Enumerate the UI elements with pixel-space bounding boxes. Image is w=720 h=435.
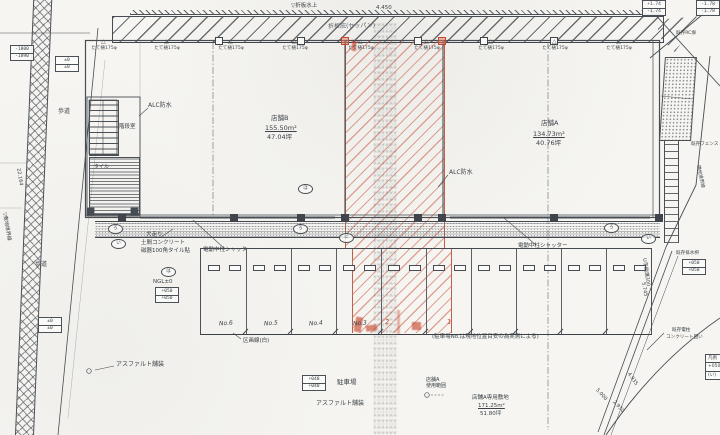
room-stair: 階段室 xyxy=(119,124,136,130)
note-tile: タイル xyxy=(94,165,109,171)
note-asphalt-left: アスファルト舗装 xyxy=(116,362,164,369)
dim-top: 4.450 xyxy=(376,5,392,11)
wheel-stop-mark xyxy=(298,265,310,271)
stall-number: No.4 xyxy=(309,320,323,328)
column-mark xyxy=(341,214,349,222)
room-a-tsubo: 40.76坪 xyxy=(536,140,561,147)
column-mark-red xyxy=(341,37,349,45)
note-lane-line: 区画線(白) xyxy=(243,338,269,344)
wheel-stop-mark xyxy=(388,265,400,271)
stall-divider xyxy=(561,249,562,334)
room-a-name: 店舗A xyxy=(541,120,558,127)
level-box-walk-value: +050 xyxy=(156,295,178,303)
legend-row: +050 xyxy=(706,362,720,370)
legend-row: 凡例 xyxy=(706,355,720,362)
level-box-ne-2-value: -1.78 xyxy=(697,8,719,16)
downspout-label: たて樋175φ xyxy=(149,45,185,51)
wheel-stop-mark xyxy=(499,265,511,271)
note-asphalt-center: アスファルト舗装 xyxy=(316,401,364,408)
note-rc-wall: 既存RC塀 xyxy=(676,31,696,36)
level-box-drain-value: +050 xyxy=(683,267,705,275)
wheel-stop-mark xyxy=(253,265,265,271)
wheel-stop-mark xyxy=(409,265,421,271)
note-inubashiri-3: 磁器100角タイル貼 xyxy=(141,248,190,254)
downspout-label: たて樋175φ xyxy=(601,45,637,51)
legend: 凡例+050(い) xyxy=(705,354,720,380)
wheel-stop-mark xyxy=(544,265,556,271)
downspout-label: たて樋175φ xyxy=(86,45,122,51)
note-inubashiri-1: 犬走り xyxy=(146,232,163,238)
wheel-stop-mark xyxy=(454,265,466,271)
stall-divider xyxy=(336,249,337,334)
note-inubashiri-2: 土間コンクリート xyxy=(141,240,185,246)
room-a-area: 134.73m² xyxy=(533,131,565,138)
downspout-label: たて樋175φ xyxy=(409,45,445,51)
stall-number-red: 1 xyxy=(447,318,452,326)
column-mark xyxy=(438,214,446,222)
stall-divider xyxy=(606,249,607,334)
column-mark xyxy=(297,214,305,222)
wheel-stop-mark xyxy=(208,265,220,271)
note-shutter-left: 電動中柱シャッター xyxy=(203,247,253,253)
column-mark xyxy=(655,214,663,222)
level-box-road-top: -1800-1890 xyxy=(10,45,34,61)
column-mark xyxy=(215,37,223,45)
level-box-ne-2: -1.78-1.78 xyxy=(696,0,720,16)
ref-bubble: ろ xyxy=(293,224,308,234)
downspout-label: たて樋175φ xyxy=(473,45,509,51)
stall-divider xyxy=(516,249,517,334)
column-mark xyxy=(480,37,488,45)
room-b-name: 店舗B xyxy=(271,115,288,122)
wheel-stop-mark xyxy=(568,265,580,271)
downspout-label: たて樋175φ xyxy=(343,45,379,51)
note-drain: 既存排水桝 xyxy=(676,251,699,256)
note-sidewalk-1: 歩道 xyxy=(58,109,70,116)
column-mark xyxy=(414,37,422,45)
ref-bubble: は xyxy=(161,267,176,277)
level-box-road-top-value: -1890 xyxy=(11,53,33,61)
ref-bubble: ほ xyxy=(298,184,313,194)
wheel-stop-mark xyxy=(343,265,355,271)
room-b-area: 155.50m² xyxy=(265,125,297,132)
stall-number-red: 2 xyxy=(385,318,390,326)
stall-divider xyxy=(291,249,292,334)
column-mark xyxy=(297,37,305,45)
ref-bubble: ろ xyxy=(108,224,123,234)
column-mark-red xyxy=(438,37,446,45)
wheel-stop-mark xyxy=(364,265,376,271)
site-plan-drawing: No.6No.5No.4No.321 △たて樋175φ△たて樋175φ△たて樋1… xyxy=(0,0,720,435)
wheel-stop-mark xyxy=(478,265,490,271)
downspout-label: たて樋175φ xyxy=(213,45,249,51)
ref-bubble: に xyxy=(339,233,354,243)
ref-bubble: ろ xyxy=(604,223,619,233)
level-box-left-low-value: ±0 xyxy=(39,325,61,333)
level-box-lot-value: +040 xyxy=(303,383,325,391)
note-fence: 既存フェンス xyxy=(691,142,718,147)
stall-divider xyxy=(426,249,427,334)
wheel-stop-mark xyxy=(229,265,241,271)
level-box-ne-1: +1.74-1.74 xyxy=(642,0,666,16)
stall-number: No.6 xyxy=(219,320,233,328)
note-a-range-2: 使用範囲 xyxy=(426,384,446,390)
wheel-stop-mark xyxy=(274,265,286,271)
note-a-site-tsubo: 51.80坪 xyxy=(480,411,501,417)
column-mark xyxy=(118,214,126,222)
note-alc-left: ALC防水 xyxy=(148,103,172,110)
dim-road-1: 5.745 xyxy=(639,282,647,297)
level-box-ne-1-value: -1.74 xyxy=(643,8,665,16)
column-mark xyxy=(550,214,558,222)
level-box-left-low: ±0±0 xyxy=(38,317,62,333)
note-shutter-right: 電動中柱シャッター xyxy=(518,243,568,249)
room-b-tsubo: 47.04坪 xyxy=(267,134,292,141)
note-pole-2: コンクリート囲い xyxy=(666,335,703,340)
stall-number: No.3 xyxy=(353,320,367,328)
note-parking-lot: 駐車場 xyxy=(337,379,357,386)
note-alc-right: ALC防水 xyxy=(449,170,473,177)
note-parking-no: (駐車場No.は現地位置目安の為実測による) xyxy=(432,334,539,340)
note-pole-1: 既存電柱 xyxy=(672,328,690,333)
stall-divider xyxy=(381,249,382,334)
stall-divider xyxy=(471,249,472,334)
wheel-stop-mark xyxy=(589,265,601,271)
wheel-stop-mark xyxy=(433,265,445,271)
stall-divider xyxy=(246,249,247,334)
line-work xyxy=(0,0,720,435)
ref-bubble: い xyxy=(111,239,126,249)
wheel-stop-mark xyxy=(319,265,331,271)
level-box-walk: +050+050 xyxy=(155,287,179,303)
stall-number: No.5 xyxy=(264,320,278,328)
note-canopy: 折板庇(セッパン) xyxy=(328,23,375,31)
legend-row: (い) xyxy=(706,371,720,379)
note-a-site-area: 171.25m² xyxy=(478,403,505,409)
note-a-site: 店舗A専用敷地 xyxy=(472,395,509,401)
parking-stall-block: No.6No.5No.4No.321 xyxy=(200,248,652,335)
wheel-stop-mark xyxy=(613,265,625,271)
level-box-lot: +040+040 xyxy=(302,375,326,391)
ref-bubble: い xyxy=(641,234,656,244)
note-ngl: NGL±0 xyxy=(153,279,173,285)
level-box-drain: +050+050 xyxy=(682,259,706,275)
level-box-entry-value: ±0 xyxy=(56,64,78,72)
level-box-entry: ±0±0 xyxy=(55,56,79,72)
note-eave-top: ▽折板水上 xyxy=(291,3,317,9)
wheel-stop-mark xyxy=(523,265,535,271)
column-mark xyxy=(230,214,238,222)
downspout-label: たて樋175φ xyxy=(537,45,573,51)
column-mark xyxy=(414,214,422,222)
note-sidewalk-2: 歩道 xyxy=(35,262,47,269)
downspout-label: たて樋175φ xyxy=(277,45,313,51)
